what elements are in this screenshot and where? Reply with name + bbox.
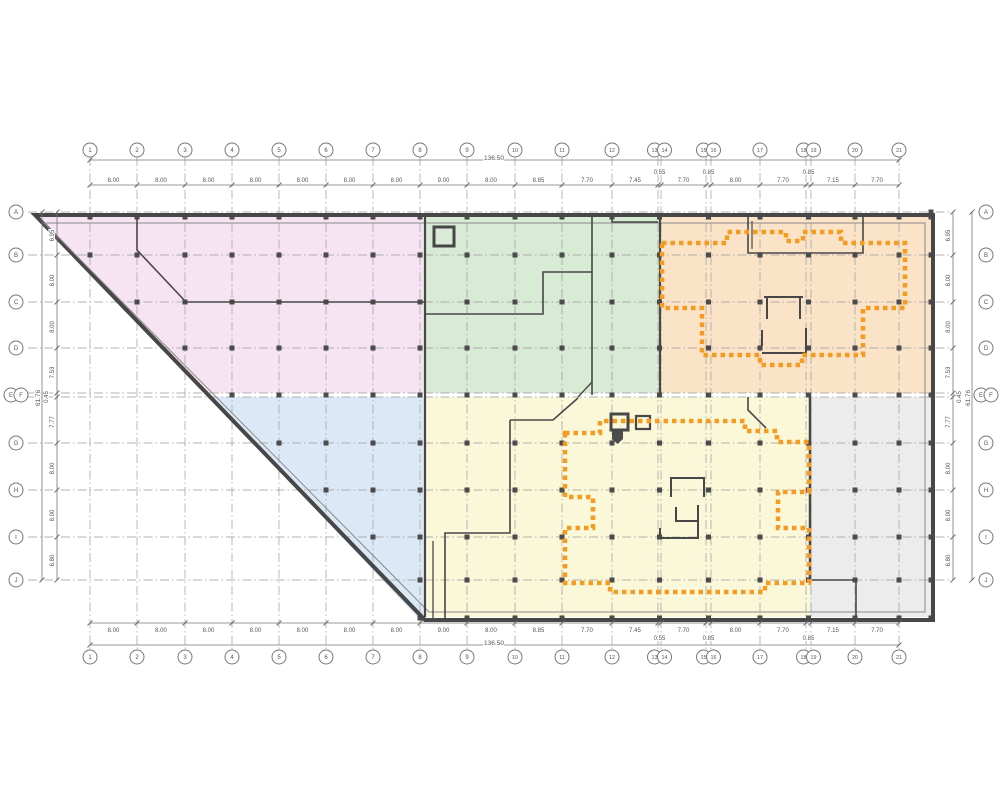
grid-bubble-label: 13 bbox=[652, 148, 658, 154]
dim-text: 8.85 bbox=[533, 628, 545, 634]
column-square bbox=[465, 253, 470, 258]
overall-width-label: 136.50 bbox=[484, 640, 504, 647]
column-square bbox=[277, 441, 282, 446]
column-square bbox=[706, 300, 711, 305]
dim-text: 8.00 bbox=[155, 628, 167, 634]
dim-text: 7.15 bbox=[827, 628, 839, 634]
dim-text: 8.00 bbox=[946, 321, 952, 333]
column-square bbox=[465, 535, 470, 540]
column-square bbox=[758, 441, 763, 446]
dim-text: 8.00 bbox=[155, 178, 167, 184]
column-square bbox=[853, 300, 858, 305]
grid-bubble-label: 15 bbox=[701, 655, 707, 661]
grid-bubble-label: 10 bbox=[512, 655, 518, 661]
column-square bbox=[324, 346, 329, 351]
dim-text: 0.45 bbox=[44, 391, 50, 403]
dim-text: 9.00 bbox=[438, 628, 450, 634]
grid-bubble-label: 10 bbox=[512, 148, 518, 154]
grid-bubble-label: J bbox=[15, 578, 18, 584]
column-square bbox=[758, 393, 763, 398]
column-square bbox=[560, 253, 565, 258]
column-square bbox=[706, 253, 711, 258]
column-square bbox=[371, 535, 376, 540]
dim-text: 8.00 bbox=[108, 628, 120, 634]
dim-text: 7.45 bbox=[629, 628, 641, 634]
grid-bubble-label: 16 bbox=[711, 655, 717, 661]
grid-bubble-label: 17 bbox=[757, 655, 763, 661]
column-square bbox=[853, 535, 858, 540]
dim-text: 7.53 bbox=[50, 366, 56, 378]
dim-text: 7.77 bbox=[50, 416, 56, 428]
grid-bubble-label: 20 bbox=[852, 148, 858, 154]
dim-text: 7.45 bbox=[629, 178, 641, 184]
grid-bubble-label: C bbox=[984, 300, 989, 306]
dim-text: 8.00 bbox=[730, 178, 742, 184]
column-square bbox=[135, 253, 140, 258]
column-square bbox=[897, 393, 902, 398]
column-square bbox=[513, 300, 518, 305]
column-square bbox=[610, 253, 615, 258]
column-square bbox=[897, 346, 902, 351]
dim-text: 6.80 bbox=[946, 554, 952, 566]
dim-text: 8.00 bbox=[730, 628, 742, 634]
column-square bbox=[657, 393, 662, 398]
column-square bbox=[706, 441, 711, 446]
grid-bubble-label: 14 bbox=[662, 655, 668, 661]
column-square bbox=[657, 578, 662, 583]
grid-bubble-label: 16 bbox=[711, 148, 717, 154]
column-square bbox=[758, 488, 763, 493]
grid-bubble-label: 21 bbox=[896, 655, 902, 661]
dim-text: 8.00 bbox=[391, 178, 403, 184]
column-square bbox=[758, 300, 763, 305]
column-square bbox=[371, 441, 376, 446]
overall-width-label: 136.50 bbox=[484, 155, 504, 162]
column-square bbox=[371, 488, 376, 493]
grid-bubble-label: F bbox=[989, 393, 993, 399]
dim-text: 7.15 bbox=[827, 178, 839, 184]
dim-text: 8.00 bbox=[344, 178, 356, 184]
grid-bubble-label: D bbox=[14, 346, 19, 352]
dim-text: 7.70 bbox=[777, 178, 789, 184]
column-square bbox=[418, 441, 423, 446]
column-square bbox=[853, 393, 858, 398]
column-square bbox=[418, 253, 423, 258]
column-square bbox=[465, 346, 470, 351]
column-square bbox=[277, 346, 282, 351]
column-square bbox=[135, 300, 140, 305]
column-square bbox=[465, 441, 470, 446]
grid-bubble-label: 18 bbox=[801, 148, 807, 154]
grid-bubble-label: 19 bbox=[811, 148, 817, 154]
dim-text: 8.00 bbox=[203, 178, 215, 184]
dim-text: 7.70 bbox=[581, 178, 593, 184]
dim-text: 7.70 bbox=[581, 628, 593, 634]
column-square bbox=[465, 393, 470, 398]
column-square bbox=[853, 346, 858, 351]
grid-bubble-label: G bbox=[14, 441, 19, 447]
floor-plan-canvas: 8.008.008.008.008.008.008.009.008.008.85… bbox=[0, 0, 1000, 800]
column-square bbox=[324, 441, 329, 446]
dim-text: 0.85 bbox=[803, 170, 815, 176]
column-square bbox=[183, 253, 188, 258]
dim-text: 8.00 bbox=[50, 274, 56, 286]
column-square bbox=[418, 578, 423, 583]
column-square bbox=[183, 346, 188, 351]
dim-text: 9.00 bbox=[438, 178, 450, 184]
grid-bubble-label: H bbox=[984, 488, 988, 494]
column-square bbox=[230, 393, 235, 398]
column-square bbox=[418, 346, 423, 351]
overall-height-label: 61.76 bbox=[965, 389, 972, 406]
column-square bbox=[560, 300, 565, 305]
column-square bbox=[610, 300, 615, 305]
dim-text: 6.80 bbox=[50, 554, 56, 566]
column-square bbox=[610, 441, 615, 446]
dim-text: 0.55 bbox=[654, 636, 666, 642]
grid-bubble-label: 18 bbox=[801, 655, 807, 661]
column-square bbox=[853, 441, 858, 446]
column-square bbox=[418, 535, 423, 540]
grid-bubble-label: E bbox=[979, 393, 983, 399]
column-square bbox=[560, 393, 565, 398]
column-square bbox=[324, 488, 329, 493]
column-square bbox=[806, 393, 811, 398]
dim-text: 7.70 bbox=[678, 178, 690, 184]
grid-bubble-label: 21 bbox=[896, 148, 902, 154]
grid-bubble-label: C bbox=[14, 300, 19, 306]
grid-bubble-label: 12 bbox=[609, 655, 615, 661]
dim-text: 6.95 bbox=[946, 229, 952, 241]
dim-text: 0.85 bbox=[703, 170, 715, 176]
column-square bbox=[465, 488, 470, 493]
grid-bubble-label: 19 bbox=[811, 655, 817, 661]
grid-bubble-label: 11 bbox=[559, 655, 565, 661]
dim-text: 8.00 bbox=[344, 628, 356, 634]
column-square bbox=[371, 253, 376, 258]
dim-text: 8.00 bbox=[203, 628, 215, 634]
grid-bubble-label: 12 bbox=[609, 148, 615, 154]
grid-bubble-label: A bbox=[984, 210, 988, 216]
column-square bbox=[324, 253, 329, 258]
grid-bubble-label: B bbox=[984, 253, 988, 259]
column-square bbox=[230, 346, 235, 351]
dim-text: 8.00 bbox=[946, 509, 952, 521]
dim-text: 8.00 bbox=[946, 462, 952, 474]
grid-bubble-label: 14 bbox=[662, 148, 668, 154]
column-square bbox=[513, 488, 518, 493]
column-square bbox=[897, 535, 902, 540]
column-square bbox=[513, 346, 518, 351]
column-square bbox=[371, 346, 376, 351]
column-square bbox=[758, 346, 763, 351]
grid-bubble-label: G bbox=[984, 441, 989, 447]
dim-text: 7.70 bbox=[777, 628, 789, 634]
dim-text: 8.00 bbox=[50, 509, 56, 521]
column-square bbox=[897, 300, 902, 305]
dim-text: 7.70 bbox=[871, 628, 883, 634]
column-square bbox=[706, 488, 711, 493]
column-square bbox=[513, 393, 518, 398]
column-square bbox=[277, 253, 282, 258]
dim-text: 0.45 bbox=[957, 391, 963, 403]
column-square bbox=[371, 393, 376, 398]
column-square bbox=[324, 393, 329, 398]
dim-text: 0.85 bbox=[703, 636, 715, 642]
column-square bbox=[897, 253, 902, 258]
grid-bubble-label: F bbox=[19, 393, 23, 399]
dim-text: 6.95 bbox=[50, 229, 56, 241]
column-square bbox=[610, 488, 615, 493]
column-square bbox=[513, 535, 518, 540]
grid-bubble-label: 11 bbox=[559, 148, 565, 154]
column-square bbox=[418, 488, 423, 493]
grid-bubble-label: A bbox=[14, 210, 18, 216]
column-square bbox=[610, 346, 615, 351]
column-square bbox=[758, 578, 763, 583]
grid-bubble-label: B bbox=[14, 253, 18, 259]
dim-text: 8.00 bbox=[391, 628, 403, 634]
grid-bubble-label: J bbox=[985, 578, 988, 584]
dim-text: 8.00 bbox=[485, 628, 497, 634]
dim-text: 7.70 bbox=[678, 628, 690, 634]
dim-text: 8.00 bbox=[297, 178, 309, 184]
column-square bbox=[706, 346, 711, 351]
dim-text: 8.00 bbox=[108, 178, 120, 184]
dim-text: 0.85 bbox=[803, 636, 815, 642]
column-square bbox=[465, 300, 470, 305]
column-square bbox=[418, 393, 423, 398]
dim-text: 7.77 bbox=[946, 416, 952, 428]
column-square bbox=[706, 578, 711, 583]
column-square bbox=[706, 393, 711, 398]
column-square bbox=[897, 488, 902, 493]
column-square bbox=[230, 253, 235, 258]
column-square bbox=[657, 488, 662, 493]
dim-text: 7.53 bbox=[946, 366, 952, 378]
column-square bbox=[465, 578, 470, 583]
dim-text: 7.70 bbox=[871, 178, 883, 184]
column-square bbox=[610, 535, 615, 540]
grid-bubble-label: 15 bbox=[701, 148, 707, 154]
column-square bbox=[610, 578, 615, 583]
column-square bbox=[88, 253, 93, 258]
column-square bbox=[706, 535, 711, 540]
column-square bbox=[806, 300, 811, 305]
column-square bbox=[657, 441, 662, 446]
dim-text: 8.00 bbox=[50, 321, 56, 333]
dim-text: 8.00 bbox=[297, 628, 309, 634]
column-square bbox=[897, 578, 902, 583]
dim-text: 8.00 bbox=[250, 628, 262, 634]
dim-text: 8.00 bbox=[250, 178, 262, 184]
dim-text: 8.00 bbox=[485, 178, 497, 184]
column-square bbox=[853, 488, 858, 493]
overall-height-label: 61.76 bbox=[35, 389, 42, 406]
floor-plan-drawing: 8.008.008.008.008.008.008.009.008.008.85… bbox=[0, 0, 1000, 800]
column-square bbox=[277, 393, 282, 398]
column-square bbox=[610, 393, 615, 398]
dim-text: 8.00 bbox=[946, 274, 952, 286]
column-square bbox=[513, 253, 518, 258]
grid-bubble-label: D bbox=[984, 346, 989, 352]
column-square bbox=[560, 346, 565, 351]
grid-bubble-label: E bbox=[9, 393, 13, 399]
dim-text: 8.85 bbox=[533, 178, 545, 184]
grid-bubble-label: H bbox=[14, 488, 18, 494]
color-zones-layer bbox=[37, 217, 931, 617]
column-square bbox=[758, 535, 763, 540]
dim-text: 8.00 bbox=[50, 462, 56, 474]
grid-bubble-label: 17 bbox=[757, 148, 763, 154]
grid-bubble-label: 13 bbox=[652, 655, 658, 661]
zone-gray bbox=[810, 397, 931, 617]
column-square bbox=[513, 578, 518, 583]
column-square bbox=[513, 441, 518, 446]
zone-pink bbox=[37, 217, 425, 393]
column-square bbox=[897, 441, 902, 446]
grid-bubble-label: 20 bbox=[852, 655, 858, 661]
dim-text: 0.55 bbox=[654, 170, 666, 176]
